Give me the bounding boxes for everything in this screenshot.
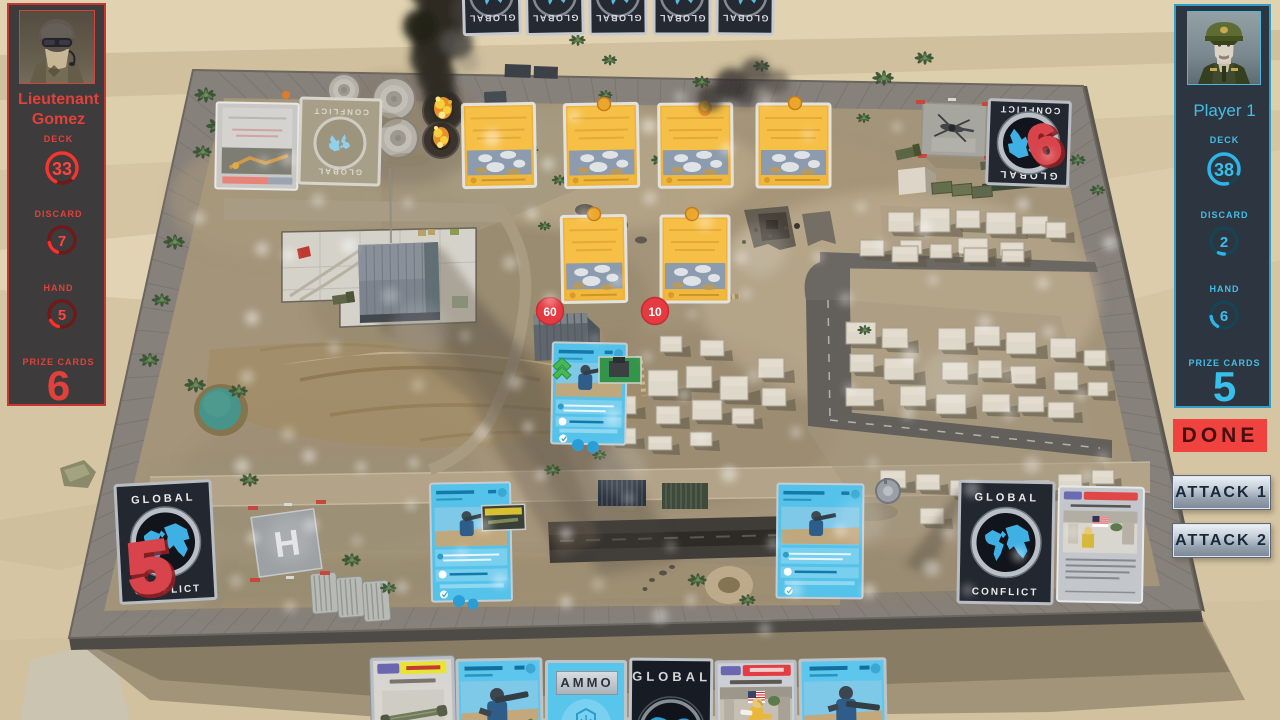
- svg-text:33: 33: [52, 159, 72, 179]
- svg-text:GLOBAL: GLOBAL: [531, 13, 578, 24]
- svg-text:CONFLICT: CONFLICT: [972, 586, 1039, 598]
- svg-text:60: 60: [543, 305, 557, 319]
- svg-text:GLOBAL: GLOBAL: [316, 166, 362, 176]
- svg-text:7: 7: [58, 233, 66, 250]
- svg-text:GLOBAL: GLOBAL: [659, 13, 706, 23]
- svg-text:6: 6: [1220, 308, 1228, 325]
- svg-text:GLOBAL: GLOBAL: [594, 13, 641, 23]
- svg-text:38: 38: [1214, 160, 1234, 180]
- svg-text:GLOBAL: GLOBAL: [974, 491, 1039, 504]
- svg-text:GLOBAL: GLOBAL: [468, 12, 515, 23]
- svg-text:CONFLICT: CONFLICT: [312, 106, 369, 116]
- svg-text:GLOBAL: GLOBAL: [721, 13, 768, 23]
- svg-text:2: 2: [1220, 234, 1228, 251]
- svg-text:5: 5: [58, 307, 66, 324]
- svg-text:10: 10: [648, 305, 662, 319]
